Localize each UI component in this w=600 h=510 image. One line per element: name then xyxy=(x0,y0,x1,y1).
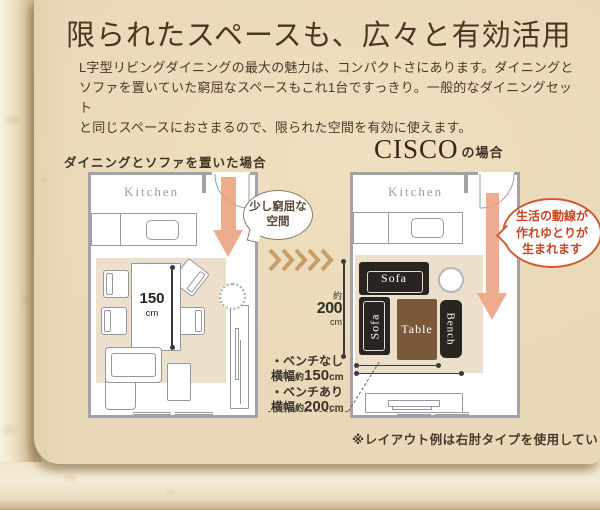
table-label: Table xyxy=(401,322,432,337)
left-floor-plan: Kitchen 150 cm xyxy=(88,172,258,418)
chair xyxy=(103,270,129,298)
chevrons-right-icon xyxy=(268,248,336,272)
table: Table xyxy=(397,299,437,360)
plant-icon xyxy=(219,283,246,310)
kitchen-counter xyxy=(91,213,197,246)
dimension-dot xyxy=(354,371,359,376)
with-bench-width: 横幅約200cm xyxy=(271,400,344,417)
bubble-text-line: 少し窮屈な xyxy=(249,200,307,215)
tv-stand xyxy=(230,305,249,409)
counter-divider xyxy=(388,213,389,243)
tv-stand-detail xyxy=(240,340,242,404)
sofa-seat-line xyxy=(367,271,423,293)
depth-dimension-line xyxy=(343,261,345,357)
dimension-dot xyxy=(354,363,359,368)
window xyxy=(175,412,213,415)
chair xyxy=(101,307,127,335)
sink xyxy=(146,220,179,240)
note-dashed-underline xyxy=(268,411,348,412)
right-floor-plan: Kitchen Sofa Sofa Table Bench xyxy=(350,172,520,418)
window xyxy=(397,412,431,415)
table-width-value: 150 xyxy=(135,290,169,307)
arrow-tail xyxy=(486,193,499,293)
paper-bottom-curl xyxy=(0,462,600,510)
depth-unit: cm xyxy=(310,318,342,327)
kitchen-label: Kitchen xyxy=(388,184,443,200)
right-plan-caption: CISCO の場合 xyxy=(374,136,504,163)
intro-paragraph: L字型リビングダイニングの最大の魅力は、コンパクトさにあります。ダイニングと ソ… xyxy=(79,58,579,138)
kitchen-label: Kitchen xyxy=(124,184,179,200)
promo-panel: 限られたスペースも、広々と有効活用 L字型リビングダイニングの最大の魅力は、コン… xyxy=(0,0,600,510)
width-approx: 約 xyxy=(295,372,304,382)
tv-board-detail xyxy=(392,406,432,410)
ottoman xyxy=(167,363,191,401)
dimension-dot xyxy=(170,345,175,350)
bench-label: Bench xyxy=(445,312,457,345)
arrow-head xyxy=(477,293,507,320)
tv-stand-detail xyxy=(235,328,239,380)
kitchen-counter xyxy=(353,212,463,244)
bench-width-note: ・ベンチなし 横幅約150cm ・ベンチあり 横幅約200cm xyxy=(271,354,344,416)
counter-divider xyxy=(120,214,121,245)
page-title: 限られたスペースも、広々と有効活用 xyxy=(66,12,586,54)
arrow-tail xyxy=(221,177,236,230)
intro-line: と同じスペースにおさまるので、限られた空間を有効に使えます。 xyxy=(79,118,579,138)
bubble-text-line: 作れゆとりが xyxy=(516,225,588,242)
bubble-text-line: 空間 xyxy=(267,215,290,230)
dimension-line-150 xyxy=(356,365,439,366)
dimension-line-150 xyxy=(171,267,173,347)
plant-icon xyxy=(438,267,464,293)
bubble-text-line: 生活の動線が xyxy=(516,208,588,225)
intro-line: ソファを置いていた窮屈なスペースもこれ1台ですっきり。一般的なダイニングセット xyxy=(79,78,579,118)
table-width-unit: cm xyxy=(135,308,169,319)
intro-line: L字型リビングダイニングの最大の魅力は、コンパクトさにあります。ダイニングと xyxy=(79,58,579,78)
dimension-dot xyxy=(341,259,346,264)
dimension-dot xyxy=(170,265,175,270)
arrow-head xyxy=(213,230,243,257)
brand-name: CISCO xyxy=(374,136,459,163)
chair xyxy=(179,307,205,335)
wall-stub xyxy=(464,175,468,193)
bubble-text-line: 生まれます xyxy=(522,241,582,258)
wall-stub xyxy=(202,175,206,193)
sink xyxy=(411,218,444,238)
bench: Bench xyxy=(440,300,462,358)
width-value: 150 xyxy=(304,367,329,384)
no-bench-width: 横幅約150cm xyxy=(271,369,344,386)
width-prefix: 横幅 xyxy=(271,369,295,383)
window xyxy=(435,412,469,415)
sofa-seat-line xyxy=(363,301,385,351)
dimension-dot xyxy=(459,371,464,376)
sofa-seat xyxy=(111,353,156,377)
caption-suffix: の場合 xyxy=(459,142,504,163)
dimension-dot xyxy=(436,363,441,368)
depth-dimension-label: 約 200 cm xyxy=(310,292,342,328)
left-plan-caption: ダイニングとソファを置いた場合 xyxy=(64,152,267,171)
depth-value: 200 xyxy=(310,301,342,318)
speech-bubble-flow: 生活の動線が 作れゆとりが 生まれます xyxy=(502,198,600,268)
tv-board xyxy=(365,393,463,413)
layout-footnote: ※レイアウト例は右肘タイプを使用しています。 xyxy=(352,429,600,448)
dining-table xyxy=(131,263,181,351)
window xyxy=(133,412,171,415)
width-unit: cm xyxy=(329,372,343,383)
